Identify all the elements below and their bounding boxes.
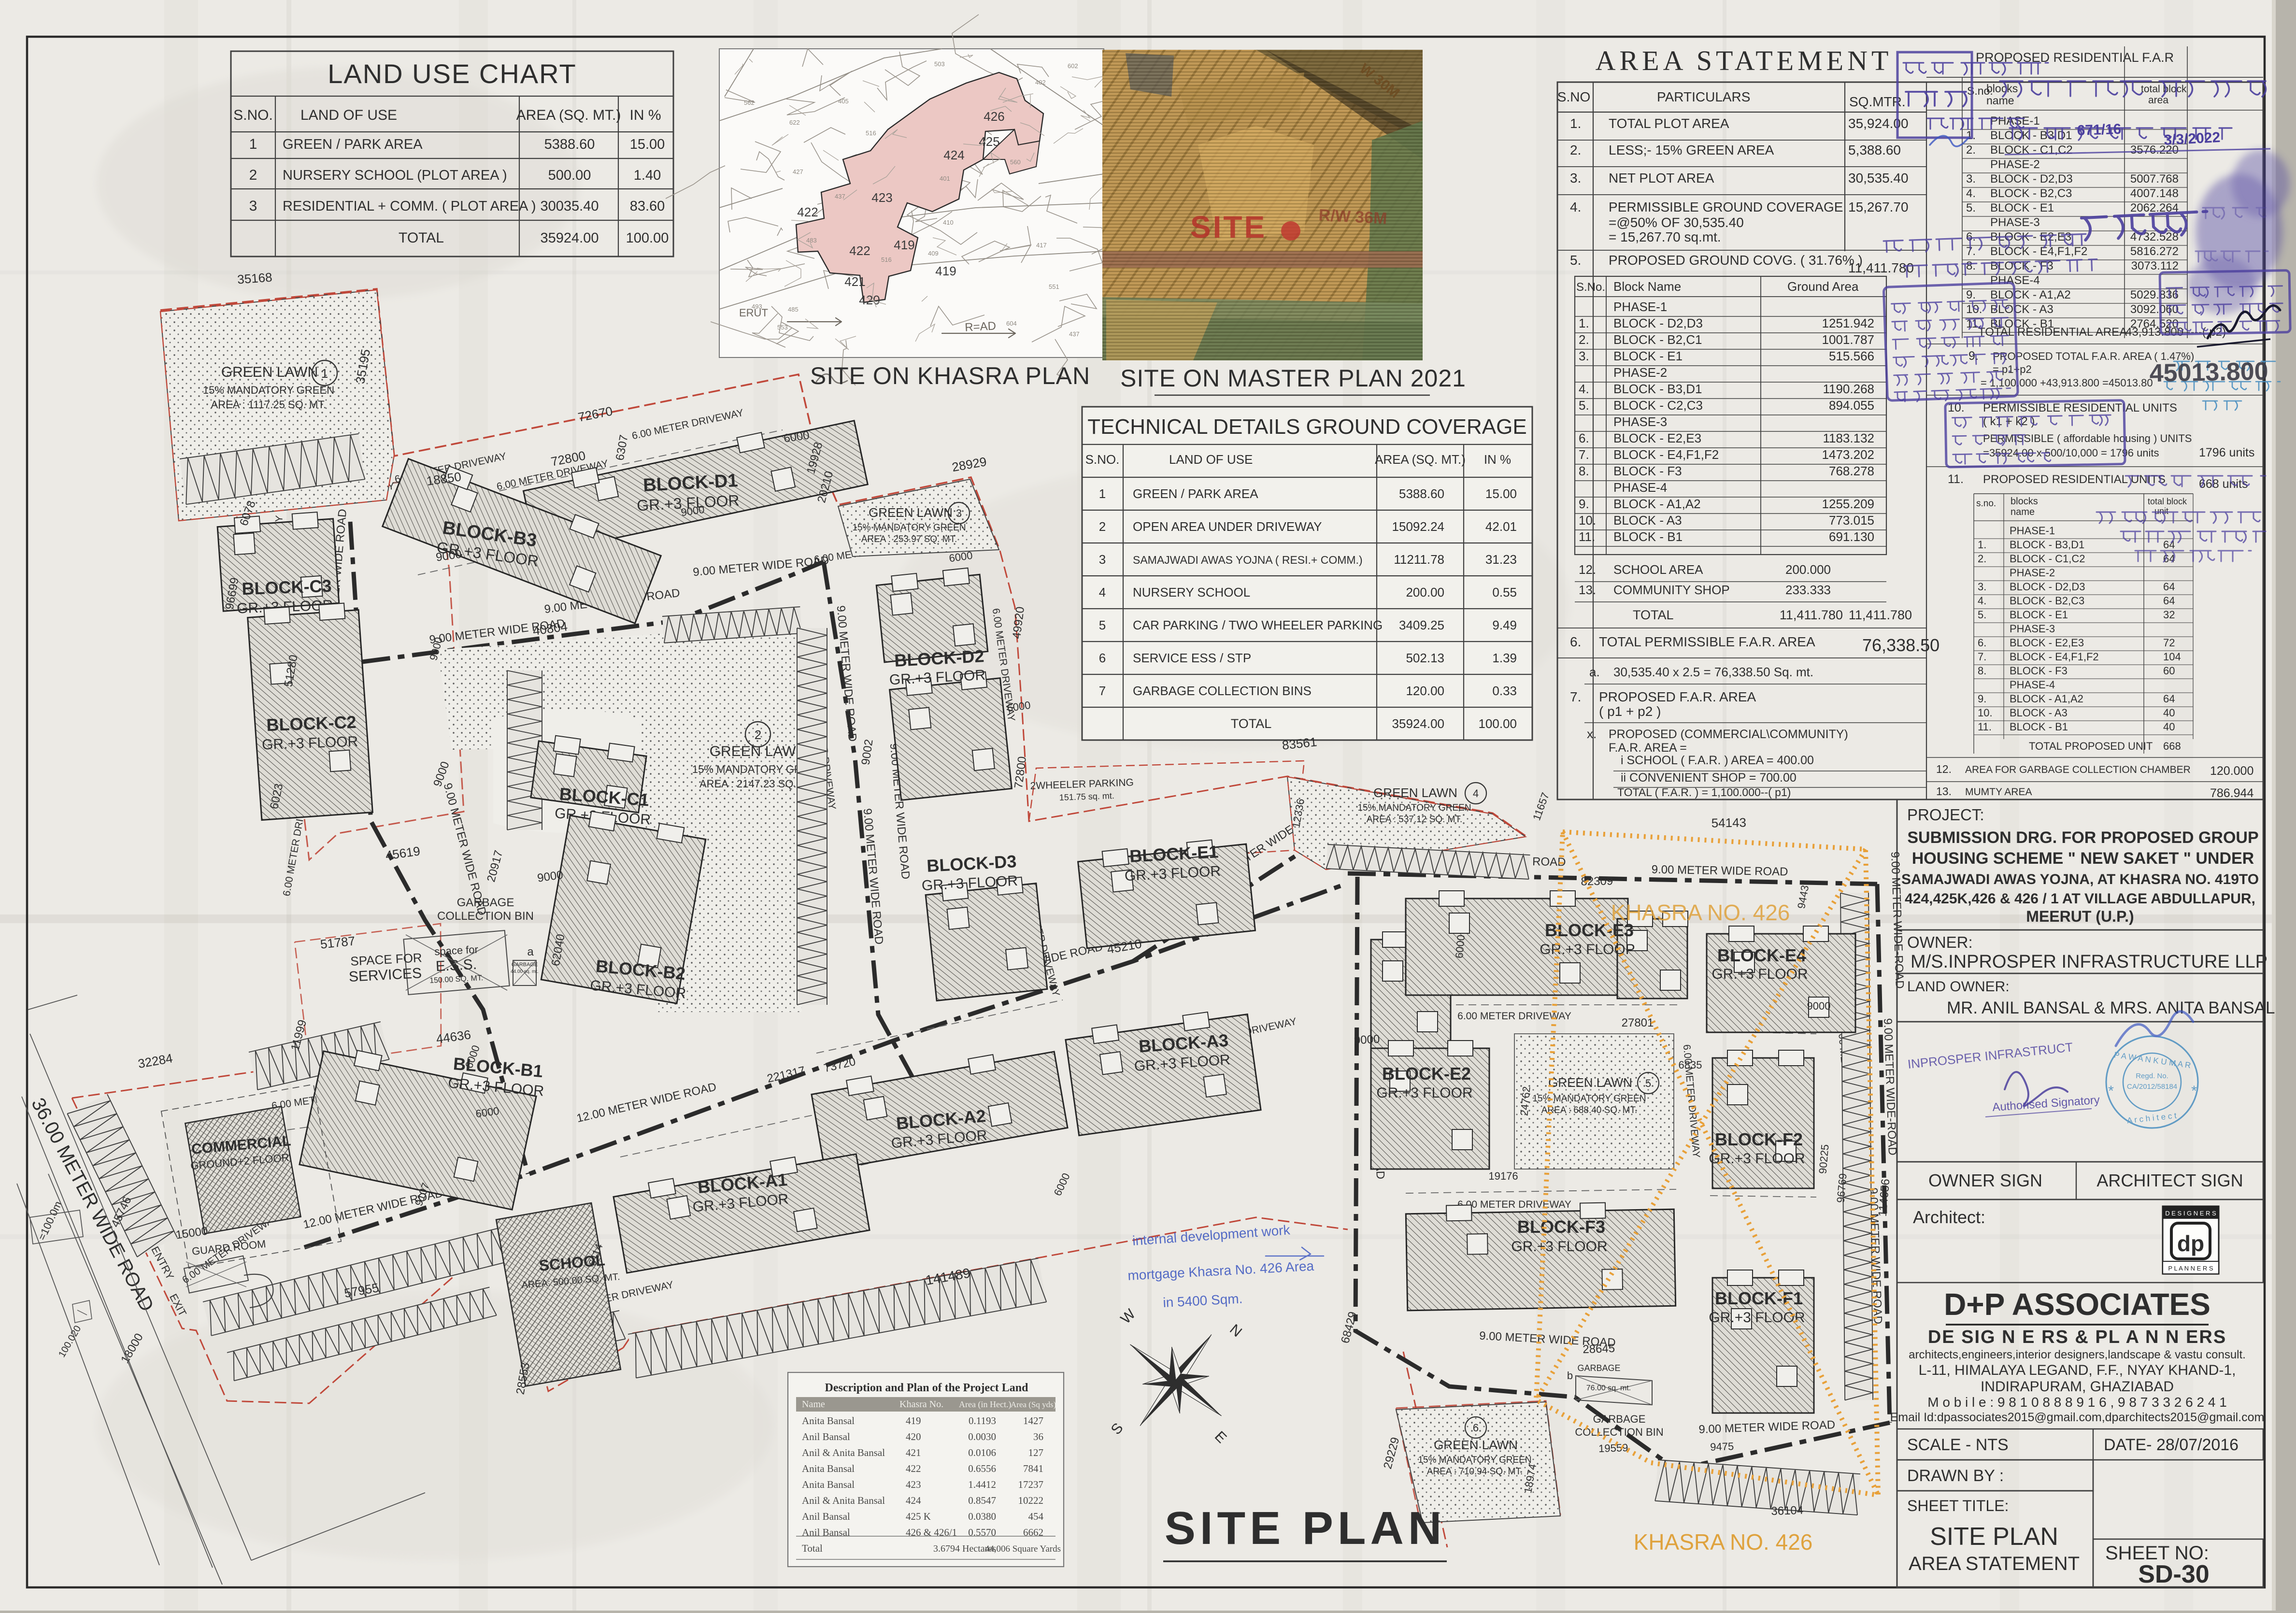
svg-text:Anil Bansal: Anil Bansal	[802, 1511, 850, 1522]
svg-text:dp: dp	[2177, 1231, 2204, 1256]
svg-text:421: 421	[844, 274, 865, 289]
svg-text:502.13: 502.13	[1406, 651, 1444, 665]
svg-text:83.60: 83.60	[630, 199, 665, 214]
svg-text:Anil & Anita Bansal: Anil & Anita Bansal	[802, 1447, 885, 1458]
svg-text:AREA STATEMENT: AREA STATEMENT	[1596, 45, 1893, 76]
svg-text:PHASE-2: PHASE-2	[1990, 158, 2040, 171]
svg-text:422: 422	[849, 243, 870, 258]
svg-text:424: 424	[906, 1495, 921, 1506]
svg-text:417: 417	[1036, 242, 1047, 249]
svg-text:=@50% OF 30,535.40: =@50% OF 30,535.40	[1609, 215, 1744, 230]
svg-text:i SCHOOL ( F.A.R. ) AREA = 4: i SCHOOL ( F.A.R. ) AREA = 400.00	[1621, 754, 1814, 767]
svg-text:ARCHITECT SIGN: ARCHITECT SIGN	[2096, 1170, 2243, 1190]
svg-text:12.: 12.	[1579, 562, 1596, 577]
svg-text:GR.+3 FLOOR: GR.+3 FLOOR	[1376, 1085, 1472, 1101]
svg-text:M o b i l e : 9 8 1 0 8 8 8 9: M o b i l e : 9 8 1 0 8 8 8 9 1 6 , 9 8 …	[1927, 1395, 2227, 1410]
svg-text:MUMTY AREA: MUMTY AREA	[1965, 786, 2032, 798]
svg-text:GARBAGE: GARBAGE	[1593, 1413, 1646, 1425]
svg-text:BLOCK-F1: BLOCK-F1	[1715, 1288, 1803, 1308]
svg-text:1183.132: 1183.132	[1823, 431, 1874, 445]
svg-text:BLOCK - C1,C2: BLOCK - C1,C2	[2010, 553, 2085, 565]
svg-text:8.: 8.	[1966, 259, 1976, 272]
svg-text:671/16: 671/16	[2077, 121, 2122, 139]
svg-text:LAND OWNER:: LAND OWNER:	[1907, 979, 2010, 995]
svg-text:*: *	[2191, 1083, 2197, 1099]
svg-text:Anita Bansal: Anita Bansal	[802, 1479, 855, 1490]
svg-text:BLOCK - E2,E3: BLOCK - E2,E3	[2010, 637, 2084, 649]
svg-text:768.278: 768.278	[1829, 464, 1874, 478]
svg-text:30,535.40 x 2.5 = 76,338.50 Sq: 30,535.40 x 2.5 = 76,338.50 Sq. mt.	[1613, 665, 1813, 679]
svg-text:BLOCK - B3,D1: BLOCK - B3,D1	[1990, 129, 2072, 142]
svg-text:200.000: 200.000	[1785, 562, 1831, 577]
svg-text:90225: 90225	[1816, 1144, 1831, 1174]
svg-text:Anil Bansal: Anil Bansal	[802, 1431, 850, 1442]
svg-text:TOTAL ( F.A.R. ) = 1,100.: TOTAL ( F.A.R. ) = 1,100.000--( p1)	[1617, 786, 1791, 799]
svg-text:AREA : 1117.25 SQ. MT.: AREA : 1117.25 SQ. MT.	[211, 399, 327, 411]
svg-text:TOTAL PLOT AREA: TOTAL PLOT AREA	[1609, 116, 1729, 131]
svg-text:BLOCK - B3,D1: BLOCK - B3,D1	[1613, 382, 1702, 396]
svg-text:GARBAGE: GARBAGE	[457, 896, 514, 909]
svg-text:405: 405	[838, 98, 849, 105]
svg-text:40: 40	[2163, 707, 2175, 719]
svg-text:M/S.INPROSPER INFRASTRUCTURE L: M/S.INPROSPER INFRASTRUCTURE LLP	[1911, 952, 2267, 972]
svg-text:35168: 35168	[237, 270, 272, 287]
svg-text:Regd. No.: Regd. No.	[2136, 1072, 2168, 1080]
svg-text:5388.60: 5388.60	[544, 137, 595, 152]
svg-text:TOTAL: TOTAL	[399, 230, 444, 246]
svg-text:17237: 17237	[1018, 1479, 1044, 1490]
svg-text:SCHOOL AREA: SCHOOL AREA	[1613, 562, 1703, 577]
svg-text:PARTICULARS: PARTICULARS	[1657, 89, 1750, 104]
svg-text:553: 553	[777, 324, 788, 331]
svg-text:427: 427	[793, 168, 803, 175]
svg-text:D+P ASSOCIATES: D+P ASSOCIATES	[1944, 1287, 2210, 1322]
svg-text:1190.268: 1190.268	[1823, 382, 1874, 396]
svg-text:AREA : 537.12 SQ. MT.: AREA : 537.12 SQ. MT.	[1367, 814, 1463, 825]
svg-text:622: 622	[789, 119, 800, 126]
svg-text:BLOCK - E1: BLOCK - E1	[1613, 349, 1683, 363]
svg-text:64: 64	[2163, 595, 2175, 607]
svg-text:SERVICE ESS / STP: SERVICE ESS / STP	[1133, 651, 1251, 665]
svg-text:DE SIG N E RS & PL A N N ERS: DE SIG N E RS & PL A N N ERS	[1928, 1327, 2226, 1347]
svg-text:602: 602	[1068, 62, 1078, 70]
svg-text:9000: 9000	[1354, 1033, 1380, 1047]
svg-text:5: 5	[1645, 1077, 1651, 1089]
svg-text:BLOCK - C2,C3: BLOCK - C2,C3	[1613, 398, 1703, 413]
svg-text:76,338.50: 76,338.50	[1862, 635, 1939, 655]
svg-text:a.: a.	[1589, 665, 1600, 679]
svg-text:9475: 9475	[1710, 1440, 1734, 1453]
svg-text:BLOCK - E4,F1,F2: BLOCK - E4,F1,F2	[2010, 651, 2099, 663]
svg-text:0.0030: 0.0030	[968, 1431, 996, 1442]
svg-text:Name: Name	[802, 1399, 825, 1410]
svg-text:SCALE - NTS: SCALE - NTS	[1907, 1436, 2009, 1454]
svg-text:SAMAJWADI AWAS YOJNA ( RESI.+: SAMAJWADI AWAS YOJNA ( RESI.+ COMM.)	[1133, 554, 1363, 566]
svg-text:120.000: 120.000	[2210, 764, 2253, 778]
svg-text:11,411.780: 11,411.780	[1848, 260, 1914, 275]
svg-text:5.: 5.	[1978, 609, 1986, 621]
svg-text:104: 104	[2163, 651, 2181, 663]
svg-text:42.01: 42.01	[1485, 519, 1517, 534]
svg-text:1473.202: 1473.202	[1822, 447, 1874, 462]
svg-text:b: b	[1567, 1370, 1573, 1382]
svg-text:area: area	[2148, 95, 2168, 106]
svg-text:BLOCK-C3: BLOCK-C3	[242, 576, 332, 599]
svg-text:60: 60	[2163, 665, 2175, 677]
svg-text:BLOCK - D2,D3: BLOCK - D2,D3	[1990, 172, 2073, 186]
svg-text:4.: 4.	[1570, 200, 1581, 214]
svg-text:BLOCK - A3: BLOCK - A3	[2010, 707, 2068, 719]
svg-text:0.6556: 0.6556	[968, 1463, 996, 1474]
svg-text:5388.60: 5388.60	[1399, 486, 1444, 501]
svg-text:515.566: 515.566	[1829, 349, 1874, 363]
svg-text:RESIDENTIAL + COMM. ( PLOT ARE: RESIDENTIAL + COMM. ( PLOT AREA )	[283, 199, 536, 214]
svg-text:HOUSING SCHEME " NEW SAKET " U: HOUSING SCHEME " NEW SAKET " UNDER	[1912, 849, 2254, 868]
svg-text:OWNER:: OWNER:	[1907, 933, 1973, 951]
svg-text:Email Id:dpassociates2015@gmai: Email Id:dpassociates2015@gmail.com,dpar…	[1890, 1411, 2265, 1424]
svg-text:64: 64	[2163, 693, 2175, 705]
svg-text:1.: 1.	[1579, 316, 1589, 330]
svg-text:OPEN AREA UNDER DRIVEWAY: OPEN AREA UNDER DRIVEWAY	[1133, 519, 1322, 534]
svg-text:3.: 3.	[1570, 171, 1581, 186]
svg-text:425: 425	[979, 134, 999, 149]
svg-text:IN %: IN %	[1484, 452, 1511, 467]
svg-text:BLOCK - A3: BLOCK - A3	[1990, 303, 2054, 316]
svg-text:127: 127	[1028, 1447, 1044, 1458]
svg-text:4007.148: 4007.148	[2130, 187, 2179, 200]
svg-text:100.00: 100.00	[626, 230, 669, 246]
svg-text:6.00 METER DRIVEWAY: 6.00 METER DRIVEWAY	[1457, 1199, 1571, 1210]
svg-text:2: 2	[755, 728, 761, 742]
svg-text:120.00: 120.00	[1406, 684, 1444, 698]
svg-text:551: 551	[1049, 283, 1059, 290]
svg-text:2: 2	[1099, 519, 1106, 534]
svg-text:96769: 96769	[1834, 1173, 1849, 1203]
svg-text:1.40: 1.40	[634, 168, 661, 183]
svg-text:894.055: 894.055	[1829, 398, 1874, 413]
svg-text:PERMISSIBLE ( affordable housi: PERMISSIBLE ( affordable housing ) UNITS	[1983, 432, 2192, 444]
svg-text:SITE: SITE	[1190, 210, 1267, 244]
svg-text:BLOCK - A3: BLOCK - A3	[1613, 513, 1682, 528]
svg-text:x.: x.	[1587, 727, 1597, 741]
svg-text:54143: 54143	[1711, 815, 1746, 830]
svg-text:15092.24: 15092.24	[1392, 519, 1444, 534]
svg-text:5.: 5.	[1966, 201, 1976, 214]
svg-text:9.: 9.	[1579, 497, 1589, 511]
svg-text:BLOCK - B2,C3: BLOCK - B2,C3	[1990, 187, 2072, 200]
svg-text:423: 423	[906, 1479, 921, 1490]
svg-text:2.: 2.	[1570, 143, 1581, 157]
svg-text:1001.787: 1001.787	[1822, 332, 1874, 347]
svg-text:15.00: 15.00	[1485, 486, 1517, 501]
svg-text:419: 419	[935, 264, 956, 278]
svg-text:2.: 2.	[1966, 143, 1976, 157]
svg-text:422: 422	[797, 205, 818, 219]
svg-text:a: a	[527, 945, 534, 958]
svg-text:1.: 1.	[1978, 539, 1986, 551]
svg-text:423: 423	[871, 190, 892, 205]
svg-text:name: name	[1986, 94, 2014, 107]
svg-text:1: 1	[1099, 486, 1106, 501]
svg-text:=35924.00 x 500/10,000 = 1796: =35924.00 x 500/10,000 = 1796 units	[1983, 447, 2159, 459]
svg-text:GREEN LAWN: GREEN LAWN	[1434, 1438, 1518, 1452]
svg-text:15.00: 15.00	[630, 137, 665, 152]
svg-text:27801: 27801	[1622, 1016, 1654, 1029]
svg-text:5.: 5.	[1579, 398, 1589, 413]
svg-text:35924.00: 35924.00	[1392, 716, 1444, 731]
svg-text:0.0106: 0.0106	[968, 1447, 996, 1458]
svg-text:4.: 4.	[1966, 187, 1976, 200]
svg-text:6.: 6.	[1966, 230, 1976, 243]
svg-text:IN %: IN %	[629, 107, 661, 123]
svg-text:PERMISSIBLE GROUND COVERAGE: PERMISSIBLE GROUND COVERAGE	[1609, 200, 1843, 214]
svg-text:CA/2012/58184: CA/2012/58184	[2127, 1083, 2177, 1091]
svg-text:8.: 8.	[1978, 665, 1986, 677]
svg-text:485: 485	[788, 306, 799, 313]
svg-text:15% MANDATORY GREEN: 15% MANDATORY GREEN	[1418, 1455, 1531, 1465]
svg-text:DRAWN BY :: DRAWN BY :	[1907, 1467, 2004, 1485]
svg-text:604: 604	[1006, 320, 1017, 327]
svg-text:PHASE-1: PHASE-1	[1990, 114, 2040, 128]
svg-text:NURSERY SCHOOL (PLOT AREA ): NURSERY SCHOOL (PLOT AREA )	[283, 168, 507, 183]
svg-text:4: 4	[1099, 585, 1106, 600]
svg-text:blocks: blocks	[1986, 82, 2018, 95]
svg-text:30,535.40: 30,535.40	[1848, 171, 1909, 186]
svg-text:TECHNICAL DETAILS GROUND COVE: TECHNICAL DETAILS GROUND COVERAGE	[1087, 415, 1526, 439]
svg-text:blocks: blocks	[2011, 496, 2038, 507]
svg-text:28645: 28645	[1583, 1342, 1615, 1356]
svg-text:35924.00: 35924.00	[541, 230, 599, 246]
svg-text:516: 516	[866, 129, 876, 137]
svg-text:40: 40	[2163, 721, 2175, 733]
svg-text:KHASRA NO. 426: KHASRA NO. 426	[1634, 1529, 1813, 1555]
svg-text:BLOCK - A1,A2: BLOCK - A1,A2	[2010, 693, 2083, 705]
svg-text:BLOCK - D2,D3: BLOCK - D2,D3	[1613, 316, 1703, 330]
svg-text:10222: 10222	[1018, 1495, 1044, 1506]
svg-text:500.00: 500.00	[548, 168, 591, 183]
svg-text:6: 6	[1473, 1422, 1479, 1434]
svg-text:11211.78: 11211.78	[1394, 552, 1444, 567]
svg-text:6835: 6835	[1679, 1059, 1702, 1071]
svg-text:S.NO: S.NO	[1557, 89, 1590, 104]
svg-text:PHASE-4: PHASE-4	[1990, 274, 2040, 287]
svg-text:unit: unit	[2154, 506, 2168, 516]
svg-text:11.: 11.	[1978, 721, 1992, 733]
svg-text:1: 1	[249, 136, 257, 152]
svg-text:24762: 24762	[1518, 1086, 1532, 1116]
svg-text:E.S.S.: E.S.S.	[435, 956, 477, 974]
svg-text:*: *	[2108, 1083, 2114, 1099]
svg-text:8.: 8.	[1579, 464, 1589, 478]
svg-text:MEERUT (U.P.): MEERUT (U.P.)	[2026, 908, 2134, 925]
svg-text:KHASRA NO. 426: KHASRA NO. 426	[1611, 900, 1790, 925]
svg-text:493: 493	[752, 303, 762, 310]
svg-text:LAND OF USE: LAND OF USE	[1169, 452, 1253, 467]
svg-text:64: 64	[2163, 553, 2175, 565]
svg-text:TOTAL PERMISSIBLE F.A.R. AREA: TOTAL PERMISSIBLE F.A.R. AREA	[1599, 634, 1815, 649]
svg-text:PHASE-3: PHASE-3	[1613, 414, 1667, 429]
svg-text:5: 5	[1099, 618, 1106, 632]
svg-text:668 units: 668 units	[2199, 477, 2248, 491]
svg-text:BLOCK-F2: BLOCK-F2	[1715, 1129, 1803, 1149]
svg-text:15% MANDATORY GREEN: 15% MANDATORY GREEN	[1357, 803, 1471, 813]
svg-text:= 1,100.000 +43,913.800 =45013: = 1,100.000 +43,913.800 =45013.80	[1981, 377, 2153, 389]
svg-text:BLOCK-E2: BLOCK-E2	[1382, 1064, 1471, 1084]
svg-text:R/W 36M: R/W 36M	[1318, 206, 1387, 228]
svg-text:72: 72	[2163, 637, 2175, 649]
svg-text:401: 401	[940, 175, 950, 182]
svg-text:PHASE-4: PHASE-4	[1613, 480, 1667, 495]
svg-text:1: 1	[321, 366, 328, 381]
svg-text:GR.+3 FLOOR: GR.+3 FLOOR	[1709, 1310, 1805, 1326]
svg-text:= p1+p2: = p1+p2	[1993, 363, 2032, 375]
svg-text:1.39: 1.39	[1492, 651, 1517, 665]
svg-text:BLOCK - E2,E3: BLOCK - E2,E3	[1613, 431, 1701, 445]
svg-text:BLOCK - F3: BLOCK - F3	[2010, 665, 2068, 677]
svg-text:0.55: 0.55	[1492, 585, 1517, 600]
svg-text:503: 503	[934, 60, 945, 68]
svg-text:PROJECT:: PROJECT:	[1907, 806, 1984, 824]
svg-text:AREA : 688.40 SQ. MT.: AREA : 688.40 SQ. MT.	[1541, 1105, 1638, 1115]
svg-text:BLOCK - D2,D3: BLOCK - D2,D3	[2010, 581, 2085, 593]
svg-text:5029.836: 5029.836	[2130, 288, 2179, 301]
svg-text:6.: 6.	[1570, 634, 1581, 649]
svg-text:3073.112: 3073.112	[2131, 259, 2179, 272]
svg-text:R=AD: R=AD	[965, 319, 997, 334]
svg-text:200.00: 200.00	[1406, 585, 1444, 600]
svg-text:420: 420	[906, 1431, 921, 1442]
svg-text:19176: 19176	[1488, 1170, 1518, 1182]
svg-text:3.: 3.	[1966, 172, 1976, 186]
svg-text:SITE PLAN: SITE PLAN	[1165, 1502, 1446, 1554]
svg-text:GARBAGE: GARBAGE	[1577, 1363, 1620, 1373]
svg-text:10.: 10.	[1966, 303, 1982, 316]
svg-text:151.75 sq. mt.: 151.75 sq. mt.	[1059, 791, 1114, 802]
svg-text:PHASE-1: PHASE-1	[2010, 525, 2055, 537]
svg-text:1796 units: 1796 units	[2199, 446, 2254, 459]
svg-text:11,411.780: 11,411.780	[1780, 608, 1843, 622]
svg-text:9.: 9.	[1968, 349, 1979, 363]
svg-text:426: 426	[984, 109, 1004, 124]
svg-text:Area (Sq yds): Area (Sq yds)	[1011, 1400, 1056, 1409]
svg-text:36104: 36104	[1771, 1504, 1804, 1518]
svg-text:BLOCK - B2,C3: BLOCK - B2,C3	[2010, 595, 2084, 607]
svg-text:BLOCK - F3: BLOCK - F3	[1613, 464, 1682, 478]
svg-text:Khasra No.: Khasra No.	[899, 1399, 943, 1410]
svg-text:30035.40: 30035.40	[541, 199, 599, 214]
svg-text:( p1 + p2 ): ( p1 + p2 )	[1599, 704, 1661, 719]
svg-text:7.: 7.	[1978, 651, 1986, 663]
svg-text:15,267.70: 15,267.70	[1848, 200, 1909, 214]
svg-text:9.49: 9.49	[1492, 618, 1517, 632]
svg-text:NURSERY SCHOOL: NURSERY SCHOOL	[1133, 585, 1250, 600]
svg-text:PROPOSED GROUND COVG. ( 31.76%: PROPOSED GROUND COVG. ( 31.76% )	[1609, 253, 1863, 268]
svg-text:D E S I G N E R S: D E S I G N E R S	[2165, 1210, 2216, 1217]
svg-text:BLOCK - A1,A2: BLOCK - A1,A2	[1613, 497, 1701, 511]
svg-text:483: 483	[806, 237, 817, 244]
svg-text:S.NO.: S.NO.	[1085, 452, 1120, 467]
svg-text:44,006 Square Yards: 44,006 Square Yards	[985, 1544, 1061, 1554]
svg-text:421: 421	[906, 1447, 921, 1458]
svg-text:BLOCK - B2,C1: BLOCK - B2,C1	[1613, 332, 1702, 347]
svg-text:6: 6	[1099, 651, 1106, 665]
svg-text:LESS;- 15% GREEN AREA: LESS;- 15% GREEN AREA	[1609, 143, 1774, 157]
svg-text:425 K: 425 K	[906, 1511, 931, 1522]
svg-text:7.: 7.	[1570, 689, 1581, 704]
svg-text:LAND USE CHART: LAND USE CHART	[328, 58, 577, 89]
svg-text:BLOCK - B3,D1: BLOCK - B3,D1	[2010, 539, 2084, 551]
svg-text:9.: 9.	[1978, 693, 1986, 705]
svg-text:AREA (SQ. MT.): AREA (SQ. MT.)	[1375, 452, 1466, 467]
svg-text:13.: 13.	[1936, 785, 1952, 798]
svg-text:422: 422	[906, 1463, 921, 1474]
svg-text:1255.209: 1255.209	[1822, 497, 1874, 511]
svg-text:architects,engineers,interior: architects,engineers,interior designers,…	[1909, 1348, 2246, 1361]
svg-text:773.015: 773.015	[1829, 513, 1874, 528]
svg-text:SITE ON MASTER PLAN 2021: SITE ON MASTER PLAN 2021	[1120, 365, 1466, 392]
svg-text:name: name	[2011, 507, 2035, 517]
svg-text:Anil & Anita Bansal: Anil & Anita Bansal	[802, 1495, 885, 1506]
svg-text:3.: 3.	[1579, 349, 1589, 363]
svg-text:AREA : 710.94 SQ. MT.: AREA : 710.94 SQ. MT.	[1427, 1467, 1523, 1477]
svg-text:TOTAL: TOTAL	[1231, 716, 1272, 731]
svg-text:1427: 1427	[1023, 1415, 1043, 1427]
svg-text:BLOCK - B1: BLOCK - B1	[2010, 721, 2068, 733]
svg-text:35,924.00: 35,924.00	[1848, 116, 1909, 131]
svg-text:13.: 13.	[1579, 583, 1596, 597]
svg-text:1251.942: 1251.942	[1822, 316, 1874, 330]
svg-text:419: 419	[906, 1415, 921, 1427]
svg-text:7: 7	[1099, 684, 1106, 698]
svg-text:PROPOSED F.A.R. AREA: PROPOSED F.A.R. AREA	[1599, 689, 1756, 704]
svg-text:PHASE-2: PHASE-2	[1613, 365, 1667, 380]
svg-text:COLLECTION BIN: COLLECTION BIN	[437, 910, 534, 923]
svg-text:BLOCK-E4: BLOCK-E4	[1717, 945, 1806, 965]
svg-text:786.944: 786.944	[2210, 786, 2253, 800]
svg-text:CAR PARKING / TWO WHEELER PARK: CAR PARKING / TWO WHEELER PARKING	[1133, 618, 1383, 632]
svg-text:BLOCK - E4,F1,F2: BLOCK - E4,F1,F2	[1613, 447, 1719, 462]
svg-text:12.: 12.	[1936, 763, 1952, 775]
svg-text:5,388.60: 5,388.60	[1848, 143, 1901, 157]
svg-text:S.NO.: S.NO.	[233, 107, 273, 123]
svg-text:5.: 5.	[1570, 253, 1581, 268]
svg-text:9.00 METER WIDE ROAD: 9.00 METER WIDE ROAD	[1652, 863, 1788, 879]
svg-text:424,425K,426 & 426 / 1 AT VIL: 424,425K,426 & 426 / 1 AT VILLAGE ABDULL…	[1905, 891, 2255, 907]
svg-text:36: 36	[1033, 1431, 1043, 1442]
svg-text:9000: 9000	[1807, 1000, 1831, 1012]
svg-text:GREEN / PARK AREA: GREEN / PARK AREA	[1133, 486, 1258, 501]
svg-text:MR. ANIL BANSAL & MRS. ANITA B: MR. ANIL BANSAL & MRS. ANITA BANSAL	[1947, 999, 2275, 1017]
svg-text:11.: 11.	[1948, 472, 1964, 486]
svg-text:4.: 4.	[1579, 382, 1589, 396]
svg-text:Anita Bansal: Anita Bansal	[802, 1463, 855, 1474]
svg-text:= 15,267.70 sq.mt.: = 15,267.70 sq.mt.	[1609, 229, 1721, 244]
svg-text:31.23: 31.23	[1485, 552, 1517, 567]
svg-text:Ground Area: Ground Area	[1787, 279, 1859, 294]
svg-text:0.33: 0.33	[1492, 684, 1517, 698]
svg-text:Total: Total	[802, 1542, 823, 1554]
svg-text:9.: 9.	[1966, 288, 1976, 301]
svg-text:424: 424	[943, 148, 964, 162]
svg-text:410: 410	[943, 219, 954, 226]
svg-text:GARBAGE: GARBAGE	[512, 962, 538, 968]
svg-text:AREA FOR GARBAGE COLLECTION CH: AREA FOR GARBAGE COLLECTION CHAMBER	[1965, 764, 2191, 775]
svg-text:SAMAJWADI AWAS YOJNA, AT KHASR: SAMAJWADI AWAS YOJNA, AT KHASRA NO. 419T…	[1901, 871, 2259, 887]
svg-text:SITE ON KHASRA PLAN: SITE ON KHASRA PLAN	[810, 362, 1090, 389]
svg-text:TOTAL PROPOSED UNIT: TOTAL PROPOSED UNIT	[2029, 740, 2153, 752]
svg-text:3409.25: 3409.25	[1399, 618, 1444, 632]
svg-text:S.No.: S.No.	[1576, 281, 1605, 294]
